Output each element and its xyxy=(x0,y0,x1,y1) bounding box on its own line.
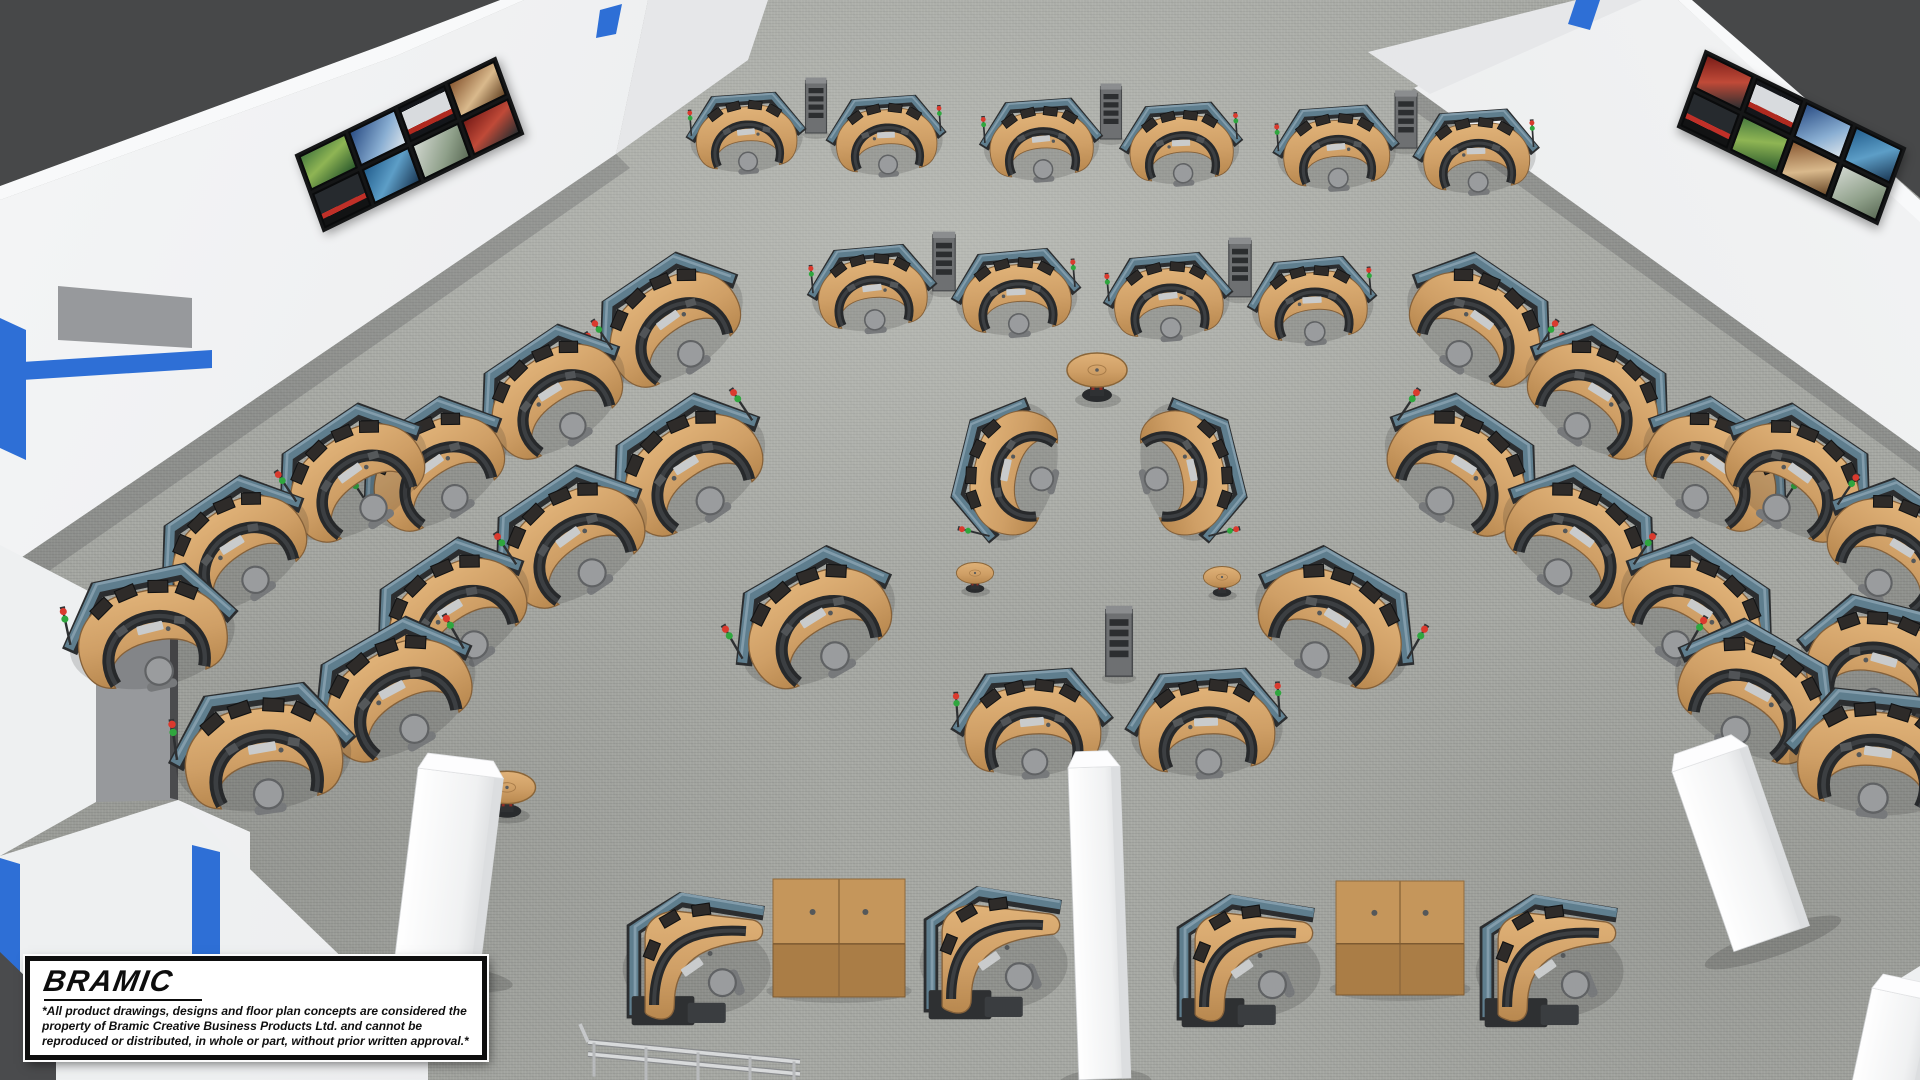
workstation-pod xyxy=(1248,256,1377,351)
round-table xyxy=(1203,567,1240,601)
workstation-pod xyxy=(945,391,1074,551)
storage-cabinet xyxy=(1330,881,1471,1001)
equipment-rack xyxy=(803,78,830,140)
watermark-box: BRAMIC *All product drawings, designs an… xyxy=(25,956,487,1060)
round-table xyxy=(956,563,993,597)
workstation-pod xyxy=(1103,252,1232,347)
workstation-pod xyxy=(952,248,1081,343)
corner-workstation xyxy=(1476,896,1624,1027)
workstation-pod xyxy=(713,530,917,715)
equipment-rack xyxy=(1102,606,1136,684)
brand-logo-underline xyxy=(44,999,202,1001)
workstation-pod xyxy=(686,92,805,178)
scene-3d-render: BRAMIC *All product drawings, designs an… xyxy=(0,0,1920,1080)
hand-railing xyxy=(580,1024,800,1080)
corner-workstation xyxy=(1173,896,1321,1027)
brand-disclaimer: *All product drawings, designs and floor… xyxy=(42,1004,470,1050)
workstation-pod xyxy=(1414,109,1539,200)
corner-workstation xyxy=(920,888,1068,1019)
workstation-pod xyxy=(1121,102,1243,190)
pillar xyxy=(1047,749,1153,1080)
corner-workstation xyxy=(623,894,771,1025)
workstation-pod xyxy=(980,98,1102,186)
round-table xyxy=(1067,353,1127,408)
pillar xyxy=(1818,967,1920,1080)
workstation-pod xyxy=(807,244,936,339)
brand-logo: BRAMIC xyxy=(41,966,176,998)
workstation-pod xyxy=(1233,530,1437,715)
workstation-pod xyxy=(1127,668,1287,784)
equipment-rack xyxy=(930,232,959,298)
storage-cabinet xyxy=(766,879,911,1003)
workstation-pod xyxy=(1273,105,1398,196)
furniture-layer xyxy=(0,0,1920,1080)
workstation-pod xyxy=(827,95,946,181)
workstation-pod xyxy=(1124,391,1253,551)
